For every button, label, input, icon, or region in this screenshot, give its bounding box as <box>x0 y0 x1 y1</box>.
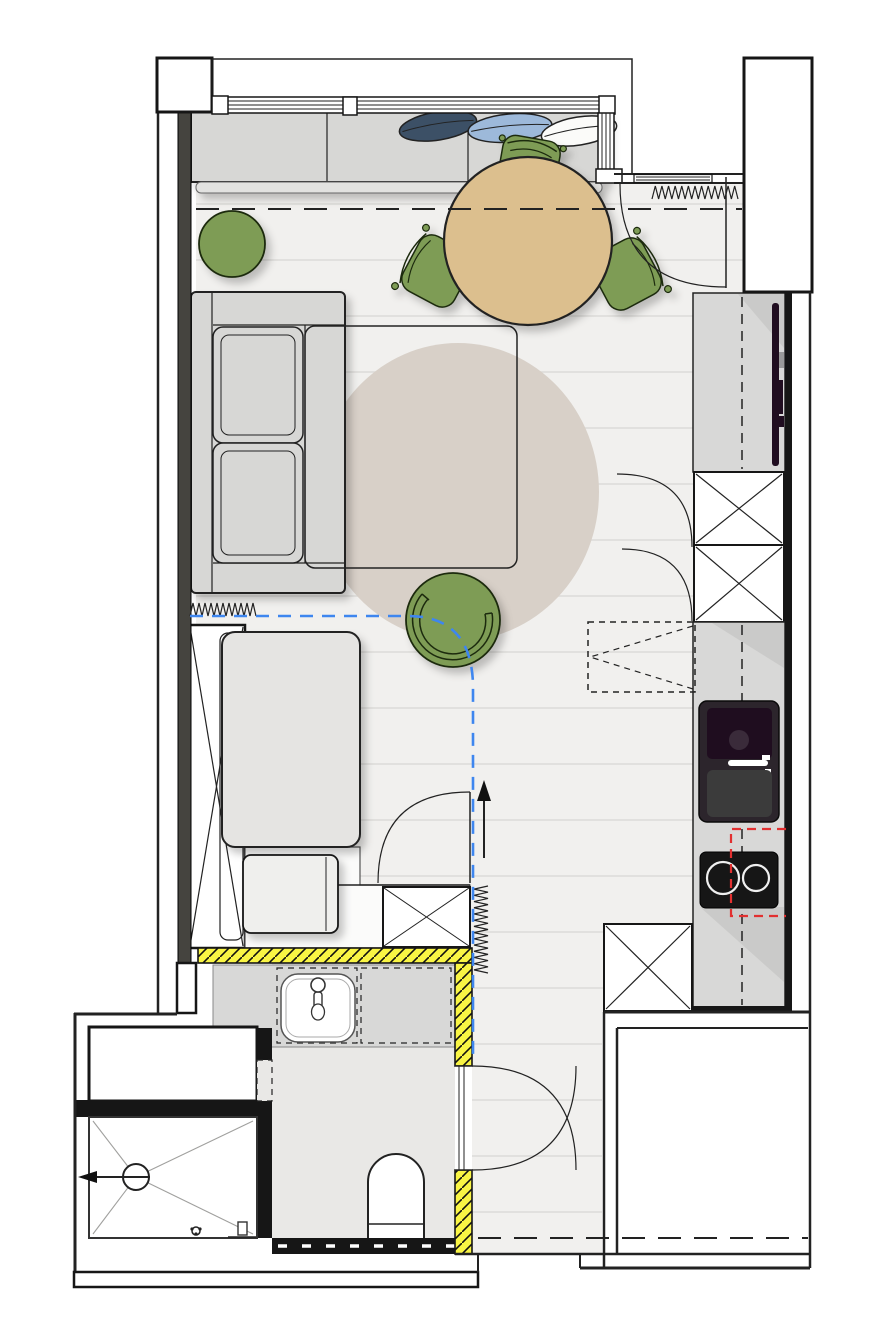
sink-basin-bottom <box>707 770 772 817</box>
drain-arrow-head <box>78 1171 97 1183</box>
floor-plan <box>0 0 870 1332</box>
wall-band-left <box>178 112 191 963</box>
window-post-left <box>212 96 228 114</box>
niche-opening <box>257 1060 272 1101</box>
kitchen-back-wall <box>785 293 792 1012</box>
dining-table <box>444 157 612 325</box>
wall-pier-topleft <box>157 58 212 112</box>
tv-mount <box>779 352 784 368</box>
yellow-wall-horizontal <box>198 948 472 963</box>
shower <box>78 1117 257 1238</box>
pouf-small <box>199 211 265 277</box>
entry-door-closed <box>634 175 712 183</box>
bath-divider-wall <box>76 1100 257 1117</box>
sofa-cushion-2 <box>213 443 303 563</box>
foot-bench <box>243 855 338 933</box>
bottom-outer-wall <box>74 1272 478 1287</box>
wash-basin <box>281 974 355 1042</box>
cooktop <box>700 852 778 908</box>
bed <box>222 632 360 847</box>
toilet <box>368 1154 424 1238</box>
floor-hall-lower <box>472 1012 602 1254</box>
tub-chair <box>406 573 500 667</box>
tv-bracket-1 <box>777 380 783 414</box>
sofa-cushion-1 <box>213 327 303 443</box>
sink-faucet <box>728 760 768 766</box>
kitchen-sink-unit <box>699 701 779 822</box>
yellow-wall-vertical-lower <box>455 1170 472 1254</box>
window-sill-block <box>596 169 622 183</box>
window-post-mid <box>343 97 357 115</box>
wall-block-bath-left <box>177 963 196 1013</box>
tv-bracket-2 <box>779 416 784 427</box>
sofa <box>191 292 345 593</box>
window-post-right <box>599 96 615 114</box>
bathroom <box>76 963 458 1254</box>
shaft-top-right <box>744 58 812 292</box>
sink-drain <box>729 730 749 750</box>
floor-plan-canvas <box>0 0 870 1332</box>
faucet-tip <box>312 1004 325 1020</box>
bath-niche <box>89 1027 257 1101</box>
shower-valve <box>238 1222 247 1235</box>
yellow-wall-vertical-upper <box>455 963 472 1066</box>
faucet-head <box>311 978 325 992</box>
